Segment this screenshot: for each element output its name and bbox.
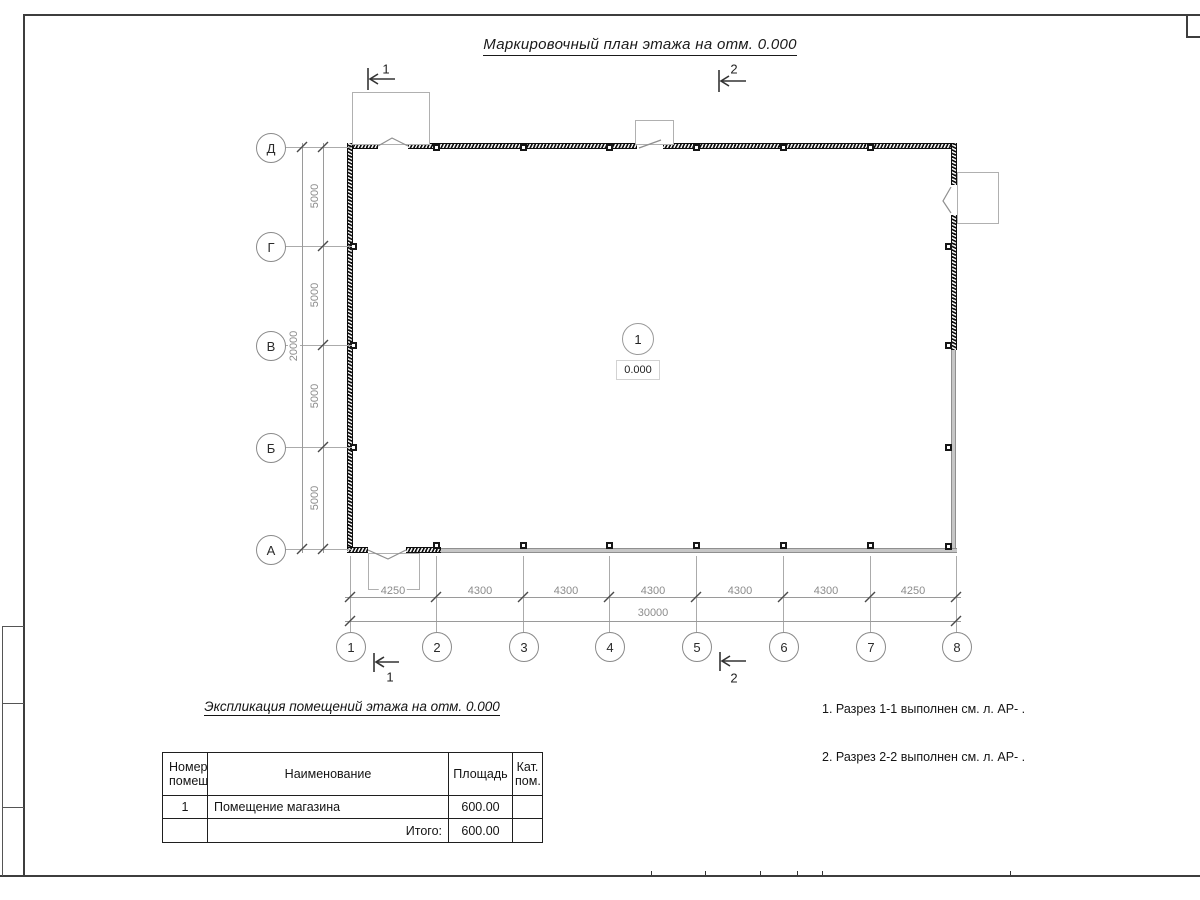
entrance-porch-top-left <box>352 92 430 145</box>
column-marker <box>867 542 874 549</box>
axis-line-d <box>284 147 352 148</box>
section-mark-2-bottom-label: 2 <box>730 671 737 686</box>
elevation-label: 0.000 <box>616 360 660 380</box>
header-name: Наименование <box>208 753 449 796</box>
axis-bubble-row: А <box>256 535 286 565</box>
drawing-sheet: Маркировочный план этажа на отм. 0.000 <box>0 0 1200 900</box>
dim-label-4300: 4300 <box>812 585 840 597</box>
room-number-bubble: 1 <box>622 323 654 355</box>
header-room-number: Номерпомещ. <box>163 753 208 796</box>
axis-bubble-col: 3 <box>509 632 539 662</box>
note-line: 1. Разрез 1-1 выполнен см. л. АР- . <box>822 701 1025 717</box>
axis-label: 4 <box>606 640 613 655</box>
axis-bubble-col: 5 <box>682 632 712 662</box>
entrance-porch-right <box>957 172 999 224</box>
axis-bubble-col: 6 <box>769 632 799 662</box>
column-marker <box>606 542 613 549</box>
titleblock-tick <box>797 871 798 875</box>
dim-label-30000: 30000 <box>636 607 671 619</box>
column-marker <box>433 144 440 151</box>
column-marker <box>693 542 700 549</box>
dim-label-4300: 4300 <box>726 585 754 597</box>
dim-label-4250: 4250 <box>379 585 407 597</box>
legend-title: Экспликация помещений этажа на отм. 0.00… <box>152 699 552 714</box>
frame-corner-box <box>1186 14 1200 38</box>
titleblock-tick <box>705 871 706 875</box>
wall-bottom-segment <box>347 547 368 553</box>
cell-room-area: 600.00 <box>449 796 513 819</box>
dim-label-4300: 4300 <box>466 585 494 597</box>
section-notes: 1. Разрез 1-1 выполнен см. л. АР- . 2. Р… <box>822 669 1025 797</box>
axis-bubble-col: 4 <box>595 632 625 662</box>
frame-bottom-line <box>0 875 1200 877</box>
frame-top-line <box>23 14 1200 16</box>
cell-room-name: Помещение магазина <box>208 796 449 819</box>
axis-label: В <box>267 339 276 354</box>
cell-empty <box>163 819 208 843</box>
room-number: 1 <box>634 332 641 347</box>
dim-label-4300: 4300 <box>639 585 667 597</box>
dim-label-5000: 5000 <box>309 182 321 210</box>
stamp-divider <box>2 626 24 627</box>
axis-label: 6 <box>780 640 787 655</box>
dim-label-5000: 5000 <box>309 281 321 309</box>
cell-room-category <box>513 796 543 819</box>
header-area: Площадь <box>449 753 513 796</box>
table-row: 1 Помещение магазина 600.00 <box>163 796 543 819</box>
section-mark-1-bottom-label: 1 <box>386 670 393 685</box>
entrance-porch-top-middle <box>635 120 674 145</box>
column-marker <box>945 243 952 250</box>
axis-label: А <box>267 543 276 558</box>
column-marker <box>945 543 952 550</box>
axis-label: 5 <box>693 640 700 655</box>
cell-total-label: Итого: <box>208 819 449 843</box>
dim-line-total-vertical <box>302 143 303 553</box>
axis-line-g <box>284 246 352 247</box>
dim-label-20000: 20000 <box>288 329 300 364</box>
door-swings <box>368 138 951 559</box>
titleblock-tick <box>822 871 823 875</box>
axis-bubble-col: 8 <box>942 632 972 662</box>
axis-bubble-col: 7 <box>856 632 886 662</box>
stamp-left-edge <box>2 626 3 876</box>
titleblock-tick <box>651 871 652 875</box>
axis-bubble-col: 2 <box>422 632 452 662</box>
axis-line-a <box>284 549 352 550</box>
axis-bubble-row: Б <box>256 433 286 463</box>
table-total-row: Итого: 600.00 <box>163 819 543 843</box>
stamp-divider <box>2 807 24 808</box>
door-right <box>943 187 951 213</box>
column-marker <box>606 144 613 151</box>
axis-label: 1 <box>347 640 354 655</box>
wall-right-segment <box>951 215 957 350</box>
note-line: 2. Разрез 2-2 выполнен см. л. АР- . <box>822 749 1025 765</box>
section-mark-2-top-label: 2 <box>730 62 737 77</box>
titleblock-tick <box>1010 871 1011 875</box>
axis-label: Г <box>267 240 274 255</box>
column-marker <box>867 144 874 151</box>
axis-bubble-row: В <box>256 331 286 361</box>
column-marker <box>520 542 527 549</box>
section-mark-arrows <box>368 68 746 672</box>
axis-label: Д <box>267 141 276 156</box>
axis-label: 3 <box>520 640 527 655</box>
axis-label: 8 <box>953 640 960 655</box>
dim-label-4300: 4300 <box>552 585 580 597</box>
column-marker <box>520 144 527 151</box>
column-marker <box>780 542 787 549</box>
stamp-divider <box>2 703 24 704</box>
titleblock-tick <box>760 871 761 875</box>
header-category: Кат.пом. <box>513 753 543 796</box>
dim-line-bays-horizontal <box>345 597 961 598</box>
column-marker <box>780 144 787 151</box>
axis-label: 7 <box>867 640 874 655</box>
cell-empty <box>513 819 543 843</box>
column-marker <box>945 342 952 349</box>
column-marker <box>693 144 700 151</box>
cell-room-number: 1 <box>163 796 208 819</box>
axis-line-b <box>284 447 352 448</box>
elevation-value: 0.000 <box>624 364 652 376</box>
dim-line-bays-vertical <box>323 143 324 553</box>
explication-table: Номерпомещ. Наименование Площадь Кат.пом… <box>162 752 543 843</box>
column-marker <box>433 542 440 549</box>
wall-top-segment <box>663 143 957 149</box>
frame-left-line <box>23 14 25 877</box>
axis-bubble-col: 1 <box>336 632 366 662</box>
axis-bubble-row: Г <box>256 232 286 262</box>
axis-label: Б <box>267 441 276 456</box>
dim-label-4250: 4250 <box>899 585 927 597</box>
dim-label-5000: 5000 <box>309 382 321 410</box>
dim-line-total-horizontal <box>345 621 961 622</box>
wall-right-glazing <box>951 350 956 552</box>
plan-title: Маркировочный план этажа на отм. 0.000 <box>420 36 860 53</box>
axis-bubble-row: Д <box>256 133 286 163</box>
column-marker <box>945 444 952 451</box>
section-mark-1-top-label: 1 <box>382 62 389 77</box>
cell-total-area: 600.00 <box>449 819 513 843</box>
axis-label: 2 <box>433 640 440 655</box>
dim-label-5000: 5000 <box>309 484 321 512</box>
